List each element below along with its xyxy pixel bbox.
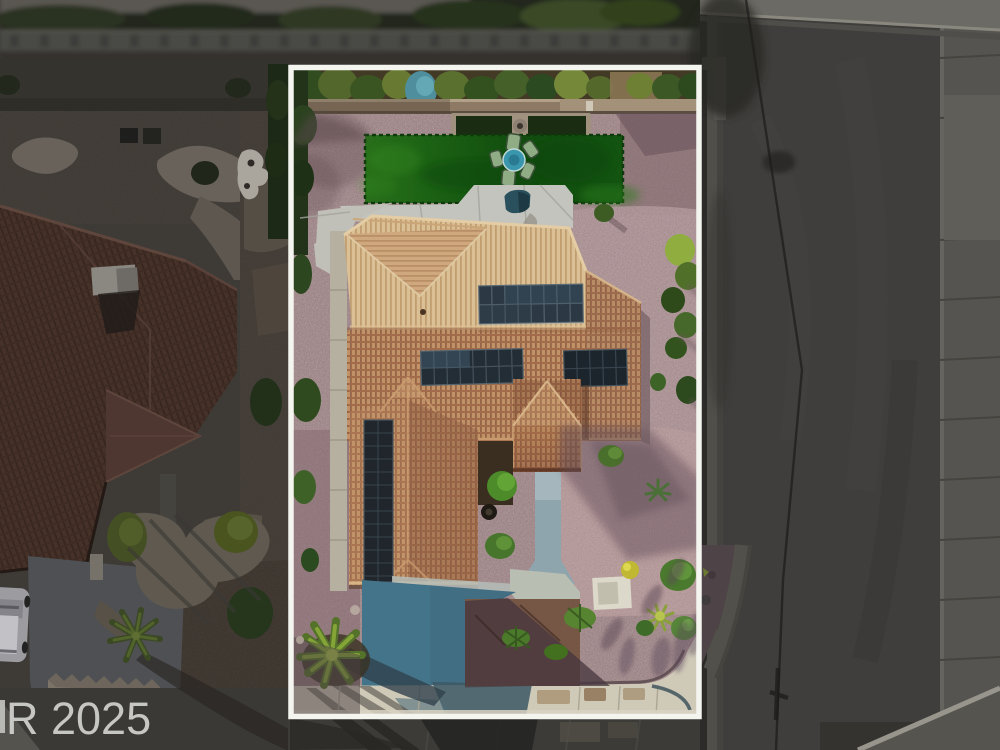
svg-text:R 2025: R 2025 <box>6 693 151 744</box>
